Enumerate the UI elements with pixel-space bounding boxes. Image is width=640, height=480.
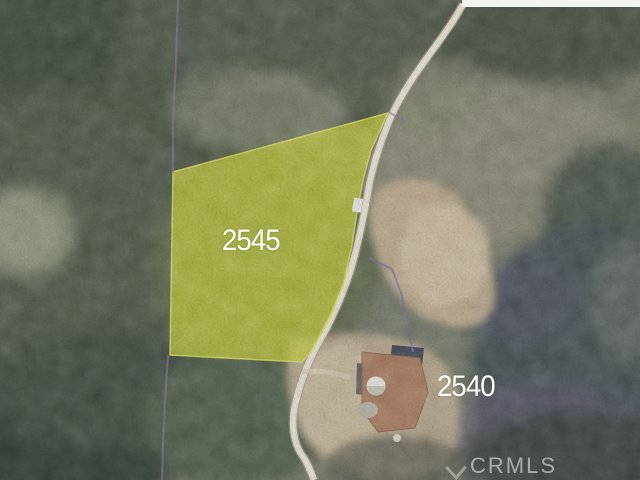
parcel-label-2540: 2540 — [437, 372, 495, 402]
aerial-imagery — [0, 0, 640, 480]
crmls-logo-icon — [445, 456, 466, 480]
aerial-parcel-map: 2545 2540 CRMLS — [0, 0, 640, 480]
parcel-label-2545: 2545 — [222, 226, 280, 256]
imagery-patch-texture — [0, 0, 640, 480]
imagery-edge-band — [462, 0, 640, 7]
crmls-watermark-text: CRMLS — [470, 453, 557, 479]
crmls-watermark: CRMLS — [448, 453, 557, 479]
